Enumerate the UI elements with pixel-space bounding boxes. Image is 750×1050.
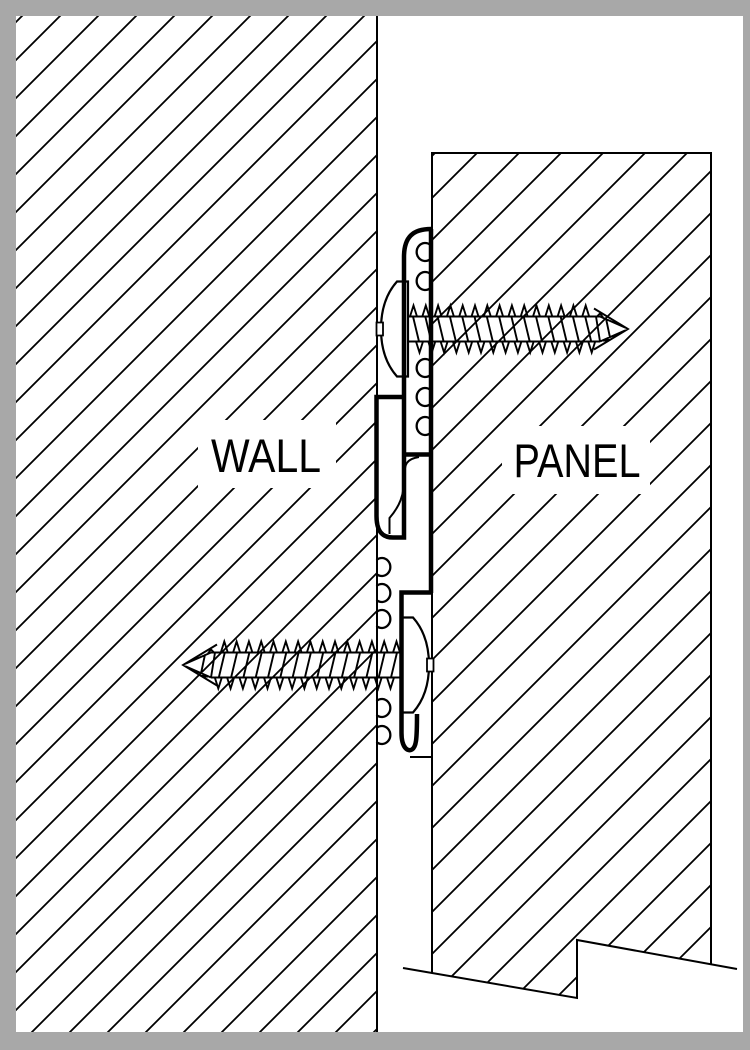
wall-hatch-region xyxy=(16,16,377,1032)
panel-hatch-region xyxy=(432,153,711,998)
wall-section xyxy=(16,16,377,1032)
wall-label: WALL xyxy=(211,429,321,482)
panel-label: PANEL xyxy=(514,434,641,487)
technical-drawing-page: WALL PANEL xyxy=(0,0,750,1050)
panel-screw-drive-slot xyxy=(377,323,384,336)
z-clip-section-drawing: WALL PANEL xyxy=(0,0,750,1050)
panel-section xyxy=(403,153,737,998)
wall-screw-drive-slot xyxy=(427,659,434,672)
